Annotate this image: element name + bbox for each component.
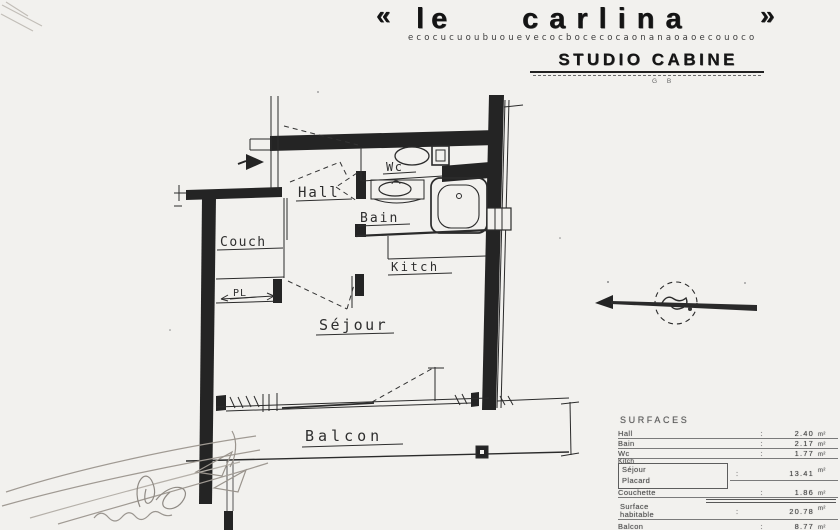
label-balcon: Balcon (305, 427, 383, 445)
label-hall: Hall (298, 185, 340, 201)
sejour-placard-value: 13.41 (772, 469, 814, 478)
table-row-balcon: Balcon : 8.77 m² (618, 521, 838, 530)
walls (186, 95, 504, 530)
label-sejour: Séjour (319, 316, 388, 334)
north-arrow-icon (595, 282, 757, 324)
entrance-arrow-icon (238, 154, 264, 170)
label-wc: Wc (386, 160, 403, 174)
table-row-couchette: Couchette : 1.86 m² (618, 487, 838, 498)
habitable-value: 20.78 (772, 507, 814, 516)
table-separator (706, 499, 836, 503)
radiator-pillar (487, 208, 511, 230)
label-kitch: Kitch (391, 260, 440, 274)
plan-lines (174, 96, 579, 511)
handwritten-scribble (1, 2, 268, 524)
label-couch: Couch (220, 235, 267, 250)
scanned-floorplan-page: « le carlina » ecocucuoubuouevecocboceco… (0, 0, 840, 530)
table-row-sejour-placard-box: Séjour Placard (618, 463, 728, 489)
label-placard: PL (233, 288, 247, 299)
balcony-post (476, 446, 488, 458)
label-bain: Bain (360, 211, 399, 226)
bathtub-icon (431, 178, 487, 233)
surfaces-header: SURFACES (620, 415, 689, 425)
habitable-label-2: habitable (620, 510, 654, 519)
surfaces-table: SURFACES Hall : 2.40 m² Bain : 2.17 m² W… (618, 413, 840, 530)
washbasin-icon (371, 180, 424, 203)
scan-noise (169, 91, 746, 331)
room-labels: Hall Wc Bain Couch PL Kitch Séjour Balco… (217, 160, 452, 447)
